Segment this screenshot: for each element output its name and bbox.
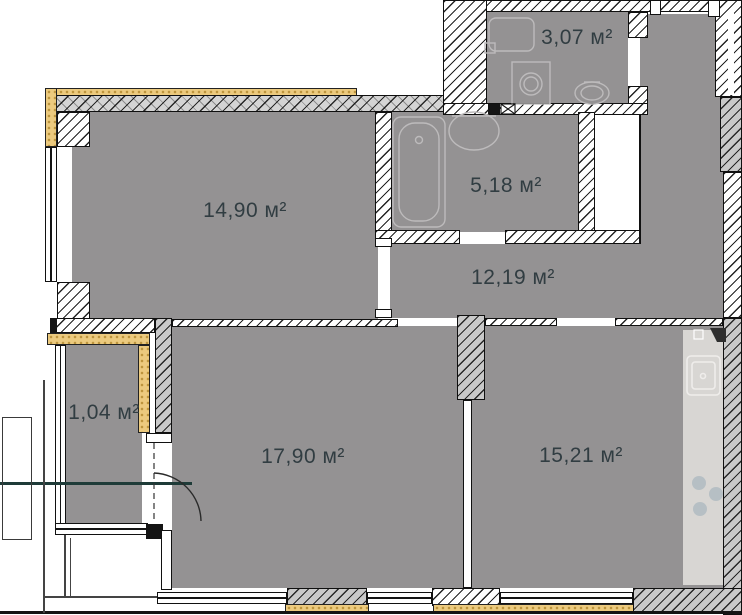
- wall-bathroom-right: [578, 112, 595, 244]
- wall-bathroom-left: [375, 112, 392, 242]
- wall-balcony-right-block: [155, 318, 172, 433]
- room-label-kitchen: 15,21 м²: [539, 444, 623, 468]
- wall-bedroom-bottom: [53, 318, 155, 333]
- room-balcony-floor: [66, 345, 142, 528]
- wall-hallway-top: [505, 230, 640, 244]
- room-label-bathroom: 5,18 м²: [470, 174, 542, 198]
- neighbor-outline-vertical: [43, 380, 45, 613]
- wall-toilet-bottom: [443, 103, 648, 115]
- terrace-outline-left: [64, 535, 66, 597]
- floor-plan: 3,07 м² 14,90 м² 5,18 м² 12,19 м² 1,04 м…: [0, 0, 742, 615]
- hallway-void-edge: [639, 115, 641, 244]
- wall-toilet-right-upper: [628, 12, 648, 38]
- bedroom-door-jamb-top: [375, 238, 392, 247]
- terrace-outline-left2: [70, 538, 71, 596]
- room-label-balcony: 1,04 м²: [68, 401, 140, 425]
- window-kitchen: [500, 592, 633, 604]
- neighbor-outline-box: [2, 417, 32, 540]
- insulation-strip-left: [45, 88, 57, 147]
- balcony-glazing-bottom: [55, 523, 148, 535]
- room-label-toilet: 3,07 м²: [541, 26, 613, 50]
- wall-right-mid: [723, 172, 742, 318]
- wall-right-pier: [720, 97, 742, 172]
- bedroom-door-jamb-bottom: [375, 309, 392, 318]
- wall-living-kitchen-partition: [463, 400, 472, 588]
- wall-left-pier-top: [57, 112, 90, 147]
- balcony-door-jamb-top: [146, 433, 172, 443]
- window-bedroom-left: [45, 147, 57, 282]
- wall-right-lower: [723, 318, 742, 615]
- wall-top-main: [55, 95, 458, 112]
- insulation-balcony-top: [47, 333, 150, 345]
- top-jamb-left: [650, 0, 661, 15]
- wall-hallway-bottom-mid: [485, 318, 557, 326]
- room-label-living: 17,90 м²: [261, 445, 345, 469]
- wall-corner-mark: [50, 318, 57, 334]
- wall-left-pier-bottom: [57, 282, 90, 320]
- room-hallway-floor: [390, 244, 723, 318]
- wall-corner-bottom-right: [633, 588, 742, 612]
- wall-living-top-left: [172, 319, 398, 327]
- room-bathroom-floor: [392, 112, 578, 232]
- room-label-bedroom: 14,90 м²: [203, 199, 287, 223]
- window-living-left: [157, 592, 287, 604]
- room-label-hallway: 12,19 м²: [471, 266, 555, 290]
- wall-toilet-left: [443, 0, 487, 112]
- top-jamb-right: [708, 0, 720, 17]
- wall-hallway-bottom-right: [615, 318, 723, 326]
- wall-living-kitchen-block: [457, 315, 485, 400]
- entrance-door-opening: [728, 10, 734, 95]
- plan-baseline: [0, 611, 742, 614]
- window-living-right: [367, 592, 432, 604]
- balcony-glazing-left: [55, 345, 66, 528]
- wall-top-right: [460, 0, 742, 12]
- wall-below-balcony-door: [161, 530, 172, 590]
- kitchen-counter: [683, 330, 723, 585]
- room-hallway-entry-floor: [640, 14, 723, 246]
